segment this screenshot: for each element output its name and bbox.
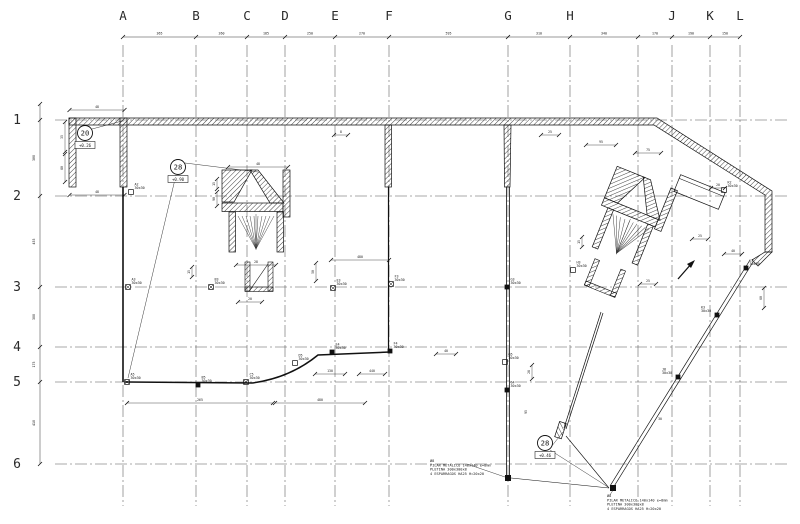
stair-shaft-wall bbox=[277, 212, 284, 252]
note-line: 4 ESPARRAGOS HA25 H=20x20 bbox=[607, 507, 661, 511]
perimeter-wall-top bbox=[69, 118, 772, 252]
column-size: 30x30 bbox=[131, 376, 141, 380]
misc-dim: 20 bbox=[236, 297, 264, 304]
tread-line bbox=[612, 219, 630, 253]
dim-text: 48 bbox=[256, 162, 260, 166]
note-line: Ø8 bbox=[430, 458, 434, 463]
column-size: 30x30 bbox=[577, 264, 587, 268]
misc-dim: 75 bbox=[633, 148, 663, 155]
misc-dim: 15 bbox=[212, 177, 219, 191]
top-dim-value: 365 bbox=[157, 32, 163, 36]
left-dim-value: 410 bbox=[32, 420, 36, 426]
grid-column-label-D: D bbox=[281, 8, 289, 23]
misc-dim: 95 bbox=[584, 140, 618, 147]
grid-column-label-G: G bbox=[504, 8, 512, 23]
line-g-to-vertex bbox=[511, 478, 609, 488]
column-size: 30x30 bbox=[337, 282, 347, 286]
pillar-note: Ø8PILAR METALICO 140x140 e=8mmPLETINA 30… bbox=[607, 490, 668, 511]
misc-dim: 25 bbox=[539, 130, 561, 137]
note-line: 4 ESPARRAGOS HA25 H=20x20 bbox=[430, 472, 484, 476]
dim-text: 48 bbox=[95, 105, 99, 109]
dim-text: 15 bbox=[212, 182, 216, 186]
staircase-right bbox=[571, 151, 725, 321]
misc-dim: 60 bbox=[759, 286, 766, 310]
column-size: 30x30 bbox=[336, 346, 346, 350]
column-size: 30x30 bbox=[299, 357, 309, 361]
tread-line bbox=[242, 216, 256, 249]
stair-shaft-wall bbox=[632, 224, 653, 265]
grid-row-label-5: 5 bbox=[13, 375, 21, 390]
dim-text: 15 bbox=[187, 270, 191, 274]
boundary-diagonal-1 bbox=[613, 262, 753, 488]
wall-stub-G bbox=[504, 125, 511, 187]
dim-text: 50 bbox=[311, 270, 315, 274]
wall-room-right bbox=[120, 118, 127, 187]
dim-text: 28 bbox=[254, 260, 258, 264]
misc-dim: 50 bbox=[311, 261, 318, 283]
dim-text: 480 bbox=[357, 255, 363, 259]
top-dim-value: 270 bbox=[359, 32, 365, 36]
grid-column-label-B: B bbox=[192, 8, 200, 23]
dim-text: 440 bbox=[369, 369, 375, 373]
grid-column-label-L: L bbox=[736, 8, 744, 23]
column-marker-E4: E430x30 bbox=[330, 343, 346, 355]
column-size: 30x30 bbox=[511, 384, 521, 388]
wall-room-left bbox=[69, 118, 76, 187]
stair-shaft-wall bbox=[229, 212, 236, 252]
dim-text: 28 bbox=[527, 370, 531, 374]
misc-dim: 40 bbox=[722, 249, 744, 256]
leader-line bbox=[550, 450, 608, 487]
column-size: 30x30 bbox=[701, 309, 711, 313]
column-size: 30x30 bbox=[509, 356, 519, 360]
shaft-lower-wall bbox=[268, 262, 273, 291]
misc-dim: 25 bbox=[638, 279, 658, 286]
shaft-lower-wall bbox=[584, 281, 616, 298]
grid-column-label-H: H bbox=[566, 8, 574, 23]
misc-dim: 15 bbox=[577, 235, 584, 249]
leader-line bbox=[128, 175, 176, 378]
misc-dim: 8 bbox=[332, 130, 350, 137]
grid-row-label-3: 3 bbox=[13, 280, 21, 295]
strut-end-plate bbox=[555, 421, 567, 438]
tread-line bbox=[256, 216, 274, 249]
column-marker-F4: F430x30 bbox=[388, 342, 404, 354]
dim-text: 40 bbox=[731, 249, 735, 253]
drawing-canvas: A365B260C185D250E270F595G310H340170J190K… bbox=[0, 0, 800, 524]
column-marker-A2: A230x30 bbox=[129, 183, 145, 195]
annotation-layer: 4848358048159028204805015825202560759513… bbox=[60, 105, 766, 511]
floor-plan-drawing: A365B260C185D250E270F595G310H340170J190K… bbox=[0, 0, 800, 524]
top-dim-value: 185 bbox=[263, 32, 269, 36]
dim-text: 25 bbox=[548, 130, 552, 134]
column-marker-G4: G430x30 bbox=[505, 381, 521, 393]
grid-column-label-A: A bbox=[119, 8, 127, 23]
misc-dim: 40 bbox=[434, 349, 458, 356]
column-marker-E3: E330x30 bbox=[331, 279, 347, 291]
top-dim-value: 190 bbox=[688, 32, 694, 36]
grid-layer: A365B260C185D250E270F595G310H340170J190K… bbox=[13, 8, 788, 506]
top-dim-value: 260 bbox=[219, 32, 225, 36]
column-marker-B5: B530x30 bbox=[196, 376, 212, 388]
stair-wall-wedge bbox=[222, 170, 252, 202]
note-line: Ø8 bbox=[607, 493, 611, 498]
dim-text: 25 bbox=[646, 279, 650, 283]
column-size: 30x30 bbox=[395, 278, 405, 282]
dim-text: 25 bbox=[698, 234, 702, 238]
column-size: 30x30 bbox=[662, 371, 672, 375]
marker-number: 28 bbox=[174, 163, 183, 172]
dim-text: 20 bbox=[248, 297, 252, 301]
misc-dim: 48 bbox=[68, 105, 127, 112]
grid-row-label-6: 6 bbox=[13, 457, 21, 472]
dim-text: 480 bbox=[317, 398, 323, 402]
top-dim-value: 250 bbox=[307, 32, 313, 36]
column-size: 30x30 bbox=[135, 186, 145, 190]
column-size: 30x30 bbox=[511, 281, 521, 285]
dim-text: 95 bbox=[599, 140, 603, 144]
misc-dim: 80 bbox=[60, 152, 67, 184]
stair-landing-panel bbox=[674, 175, 725, 210]
column-size: 30x30 bbox=[394, 345, 404, 349]
dim-text: 60 bbox=[759, 296, 763, 300]
shaft-lower-wall bbox=[245, 262, 250, 291]
left-dim-value: 455 bbox=[32, 239, 36, 245]
grid-column-label-E: E bbox=[331, 8, 339, 23]
strut-right-2 bbox=[566, 313, 603, 429]
dim-text: 30 bbox=[658, 417, 662, 421]
column-marker-F3: F330x30 bbox=[389, 275, 405, 287]
misc-dim: 48 bbox=[226, 162, 290, 169]
tread-line bbox=[256, 216, 270, 249]
misc-dim: 480 bbox=[273, 398, 367, 405]
column-size: 30x30 bbox=[250, 376, 260, 380]
misc-dim: 15 bbox=[187, 265, 194, 279]
shaft-ramp-line bbox=[250, 264, 268, 290]
grid-column-label-J: J bbox=[668, 8, 676, 23]
misc-dim: 130 bbox=[313, 369, 347, 376]
column-marker-J8: J830x30 bbox=[662, 368, 680, 380]
column-marker-H3: H330x30 bbox=[571, 261, 587, 273]
top-dim-value: 595 bbox=[446, 32, 452, 36]
stair-wall-bottom bbox=[222, 203, 283, 212]
dim-text: 130 bbox=[327, 369, 333, 373]
level-value: +0.46 bbox=[539, 453, 552, 458]
dim-text: 35 bbox=[60, 135, 64, 139]
column-size: 30x30 bbox=[728, 184, 738, 188]
shaft-lower-wall bbox=[245, 287, 273, 292]
stair-treads bbox=[238, 214, 274, 250]
dim-text: 20 bbox=[716, 183, 720, 187]
left-dim-value: 175 bbox=[32, 362, 36, 368]
misc-dim: 28 bbox=[527, 363, 534, 381]
grid-column-label-C: C bbox=[243, 8, 251, 23]
column-marker-G5: G530x30 bbox=[503, 353, 519, 365]
column-size: 30x30 bbox=[132, 281, 142, 285]
top-dim-value: 150 bbox=[722, 32, 728, 36]
misc-dim: 20 bbox=[709, 183, 727, 190]
stair-wall bbox=[283, 170, 290, 217]
stair-shaft-wall bbox=[592, 208, 613, 249]
top-dim-value: 310 bbox=[536, 32, 542, 36]
slope-arrow bbox=[678, 260, 695, 279]
dim-text: 75 bbox=[646, 148, 650, 152]
pillar-note: Ø8PILAR METALICO 140x140 e=8mmPLETINA 30… bbox=[430, 458, 505, 477]
left-dim-value: 300 bbox=[32, 314, 36, 320]
grid-row-label-4: 4 bbox=[13, 340, 21, 355]
dim-text: 265 bbox=[197, 398, 203, 402]
column-marker-B3: B330x30 bbox=[209, 278, 225, 290]
level-value: +0.26 bbox=[79, 143, 92, 148]
stair-landing-panel-line bbox=[679, 178, 724, 196]
stair-wall-diагonal bbox=[250, 170, 284, 203]
column-marker-K2: K230x30 bbox=[722, 181, 738, 193]
grid-column-label-F: F bbox=[385, 8, 393, 23]
dim-text: 40 bbox=[444, 349, 448, 353]
misc-dim: 95 bbox=[524, 410, 528, 414]
column-size: 30x30 bbox=[215, 281, 225, 285]
misc-dim: 440 bbox=[357, 369, 387, 376]
dim-text: 48 bbox=[95, 190, 99, 194]
top-dim-value: 340 bbox=[601, 32, 607, 36]
line-strut-to-vertex bbox=[566, 436, 609, 488]
column-size: 30x30 bbox=[202, 379, 212, 383]
column-marker-G3: G330x30 bbox=[505, 278, 521, 290]
dim-text: 80 bbox=[60, 166, 64, 170]
grid-row-label-2: 2 bbox=[13, 189, 21, 204]
grid-row-label-1: 1 bbox=[13, 113, 21, 128]
misc-dim: 480 bbox=[329, 255, 391, 262]
level-marker-28: 28+0.46 bbox=[535, 432, 608, 487]
dim-text: 8 bbox=[340, 130, 342, 134]
wall-stub-F bbox=[385, 125, 392, 187]
misc-dim: 90 bbox=[212, 190, 219, 208]
misc-dim: 265 bbox=[125, 398, 275, 405]
top-dim-value: 170 bbox=[652, 32, 658, 36]
misc-dim: 30 bbox=[658, 417, 662, 421]
boundary-diagonal-2 bbox=[610, 260, 750, 486]
column-marker-pillar bbox=[505, 475, 511, 481]
staircase-left bbox=[222, 170, 290, 292]
column-size: 30x30 bbox=[750, 262, 760, 266]
misc-dim: 25 bbox=[690, 234, 710, 241]
dim-text: 15 bbox=[577, 240, 581, 244]
level-value: +0.90 bbox=[172, 177, 185, 182]
marker-number: 28 bbox=[541, 439, 550, 448]
left-dim-value: 380 bbox=[32, 155, 36, 161]
strut-right-1 bbox=[564, 312, 601, 428]
column-marker-A3: A330x30 bbox=[126, 278, 142, 290]
marker-number: 20 bbox=[81, 129, 90, 138]
misc-dim: 35 bbox=[60, 120, 67, 154]
grid-column-label-K: K bbox=[706, 8, 714, 23]
dim-text: 90 bbox=[212, 197, 216, 201]
dim-text: 95 bbox=[524, 410, 528, 414]
